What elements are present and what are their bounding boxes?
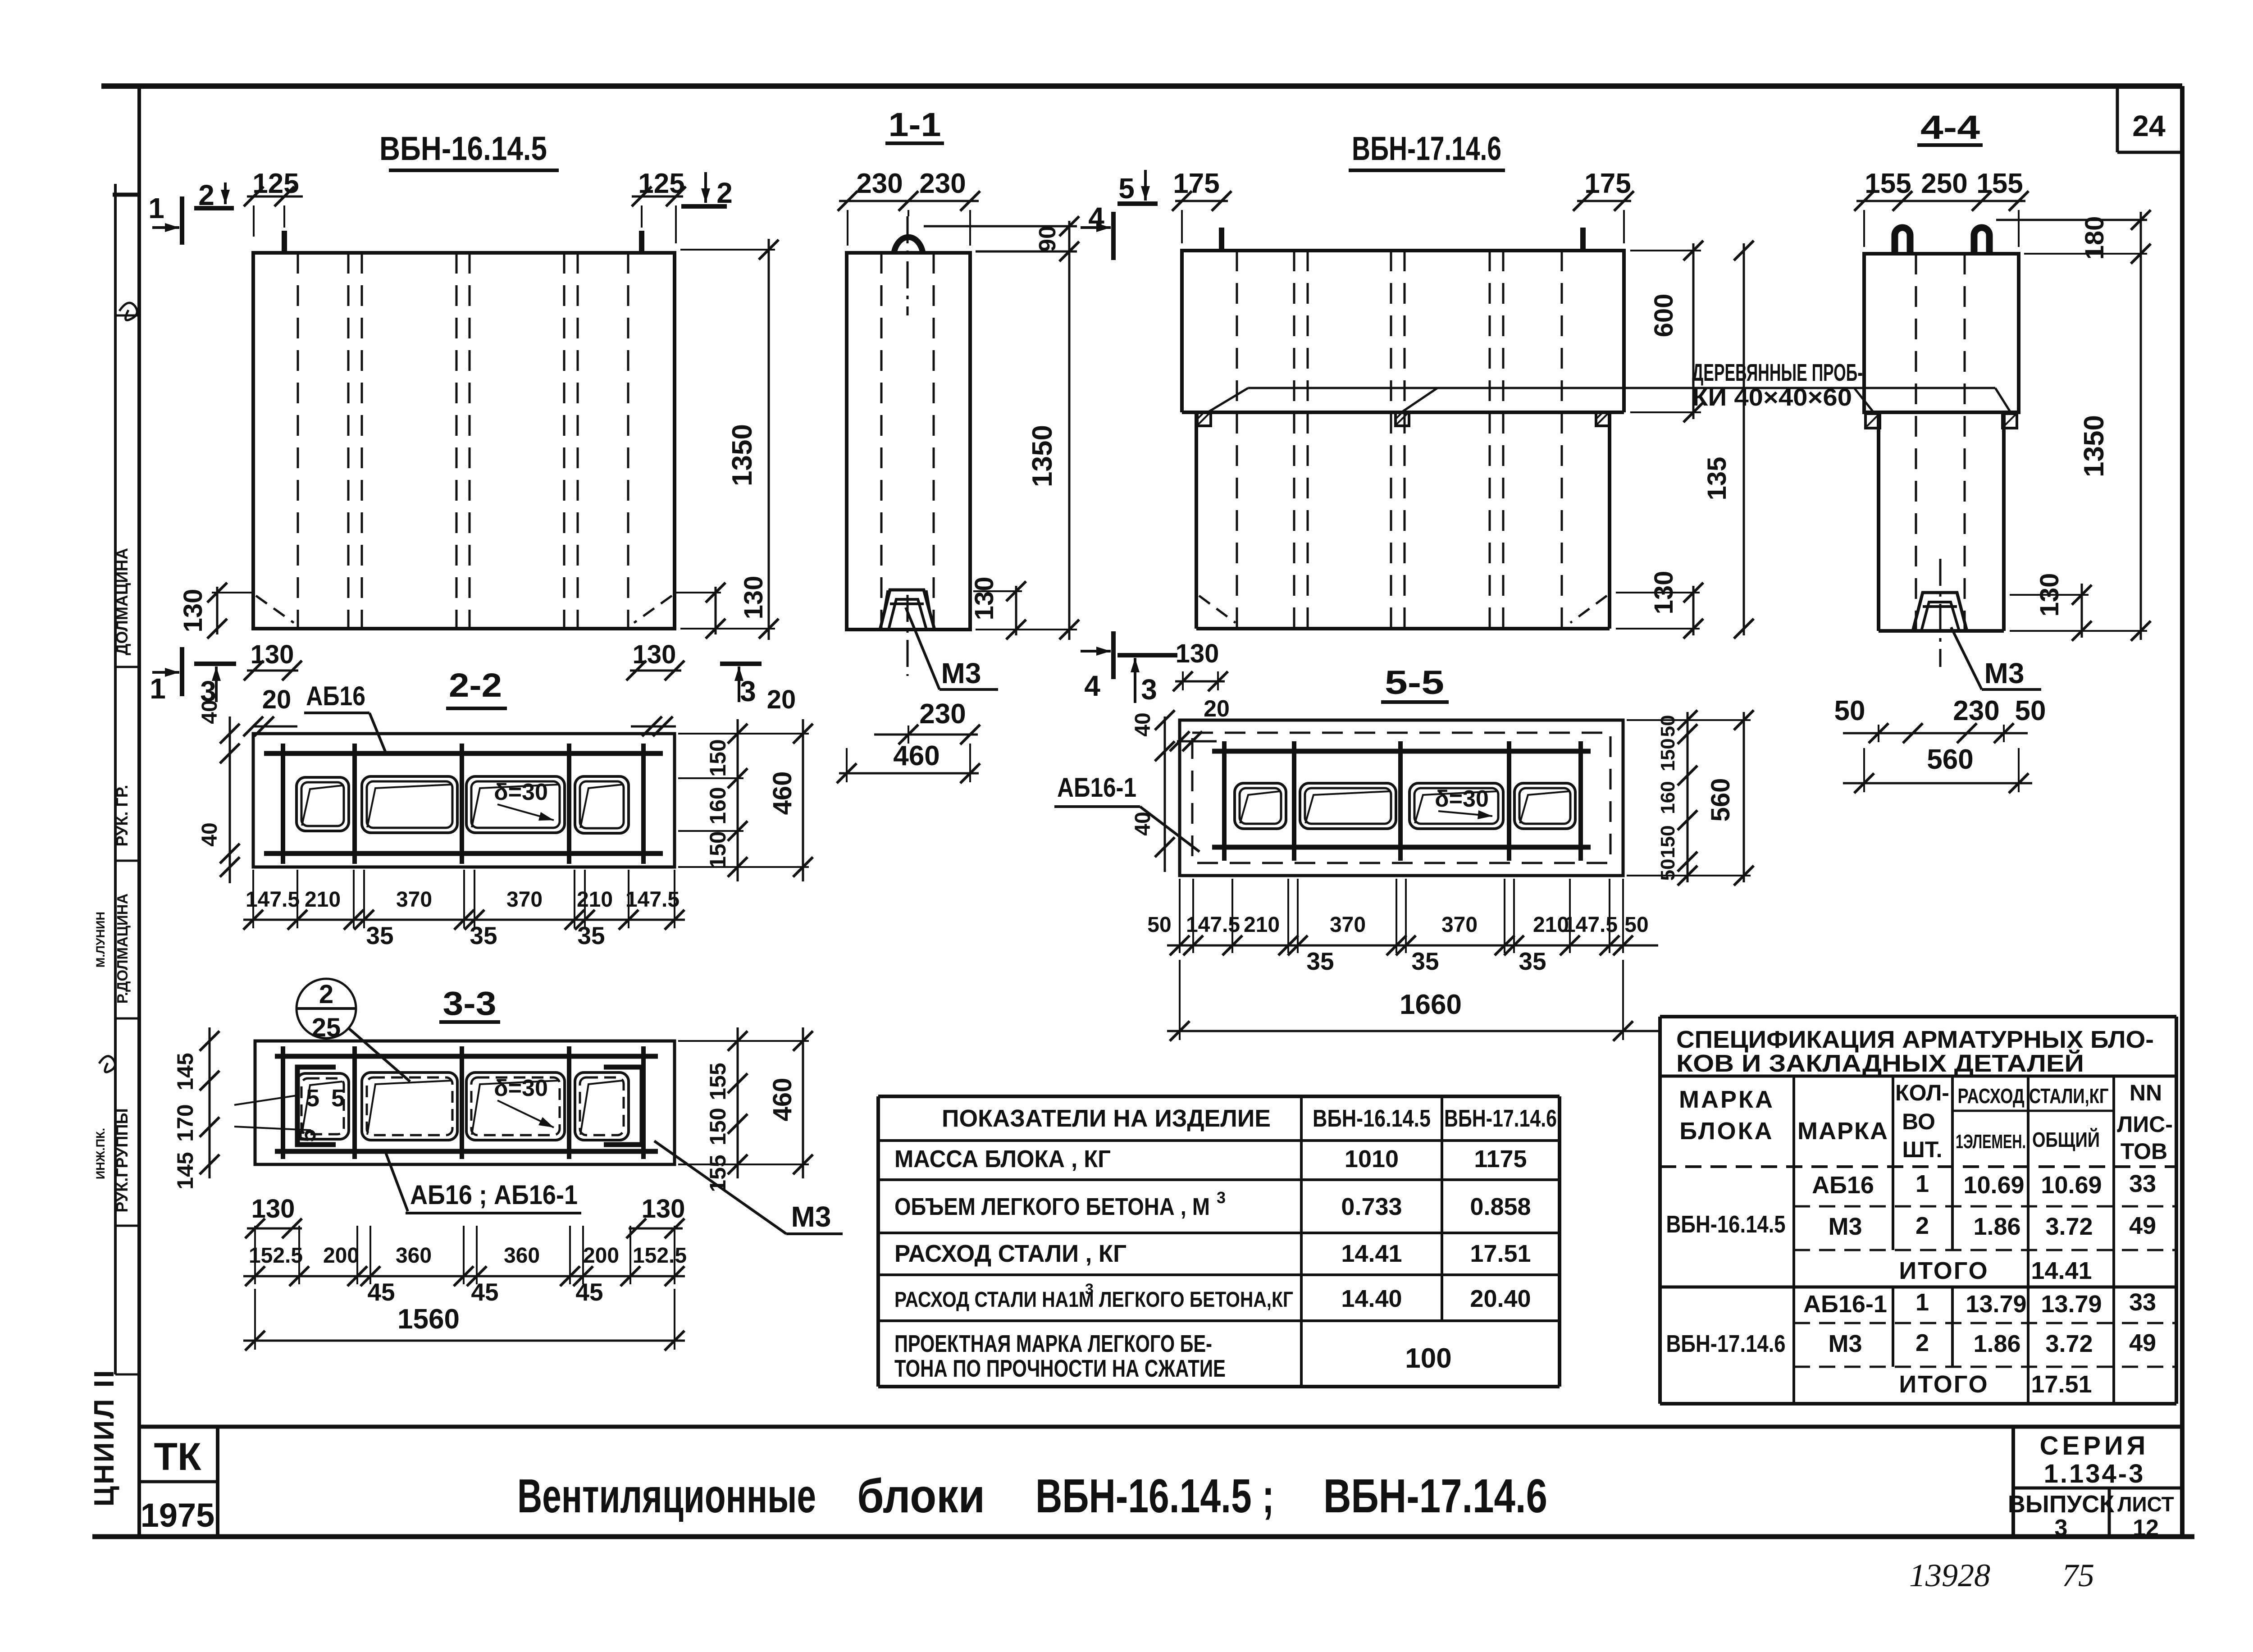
svg-text:1: 1 xyxy=(1916,1289,1929,1316)
svg-text:ЦНИИЛ II: ЦНИИЛ II xyxy=(89,1369,120,1506)
svg-text:СЕРИЯ: СЕРИЯ xyxy=(2040,1431,2149,1460)
svg-text:РАСХОД СТАЛИ НА1М ЛЕГКОГО БЕТО: РАСХОД СТАЛИ НА1М ЛЕГКОГО БЕТОНА,КГ xyxy=(894,1288,1293,1312)
svg-text:3: 3 xyxy=(2055,1515,2068,1541)
svg-text:50: 50 xyxy=(1147,913,1171,937)
svg-text:230: 230 xyxy=(919,168,966,199)
svg-text:ВЫПУСК: ВЫПУСК xyxy=(2008,1491,2115,1518)
svg-text:25: 25 xyxy=(312,1013,341,1042)
svg-text:1175: 1175 xyxy=(1474,1145,1527,1173)
svg-text:М3: М3 xyxy=(791,1200,831,1233)
svg-text:БЛОКА: БЛОКА xyxy=(1679,1118,1774,1145)
svg-text:блоки: блоки xyxy=(857,1469,985,1523)
svg-text:0.858: 0.858 xyxy=(1470,1193,1531,1220)
svg-text:1350: 1350 xyxy=(1027,425,1058,487)
svg-text:49: 49 xyxy=(2129,1212,2156,1239)
svg-text:155: 155 xyxy=(705,1155,730,1192)
svg-text:5-5: 5-5 xyxy=(1385,664,1444,701)
svg-text:40: 40 xyxy=(198,700,222,724)
svg-text:13928: 13928 xyxy=(1909,1557,1990,1593)
svg-text:ВБН-16.14.5: ВБН-16.14.5 xyxy=(379,130,547,167)
svg-text:152.5: 152.5 xyxy=(633,1244,687,1268)
svg-text:130: 130 xyxy=(970,577,999,621)
svg-text:ТОНА ПО ПРОЧНОСТИ НА СЖАТИЕ: ТОНА ПО ПРОЧНОСТИ НА СЖАТИЕ xyxy=(894,1355,1226,1382)
svg-text:125: 125 xyxy=(638,168,684,199)
svg-text:130: 130 xyxy=(178,589,208,633)
svg-text:ИТОГО: ИТОГО xyxy=(1899,1371,1988,1398)
svg-text:δ=30: δ=30 xyxy=(494,1075,548,1101)
svg-text:ДОЛМАЦИНА: ДОЛМАЦИНА xyxy=(113,548,131,655)
svg-text:1: 1 xyxy=(148,192,164,224)
svg-text:50: 50 xyxy=(1834,695,1865,726)
svg-text:35: 35 xyxy=(1519,947,1546,975)
svg-text:130: 130 xyxy=(251,640,294,669)
svg-text:130: 130 xyxy=(251,1194,295,1223)
svg-text:200: 200 xyxy=(323,1244,359,1268)
svg-text:ДЕРЕВЯННЫЕ ПРОБ-: ДЕРЕВЯННЫЕ ПРОБ- xyxy=(1692,359,1863,386)
svg-text:ТОВ: ТОВ xyxy=(2121,1139,2167,1164)
svg-text:230: 230 xyxy=(1953,695,1999,726)
svg-text:40: 40 xyxy=(1131,812,1155,835)
svg-text:ВБН-16.14.5 ;: ВБН-16.14.5 ; xyxy=(1035,1469,1274,1523)
svg-text:14.41: 14.41 xyxy=(1341,1240,1402,1267)
svg-text:1.134-3: 1.134-3 xyxy=(2044,1459,2145,1488)
svg-text:РАСХОД СТАЛИ,КГ: РАСХОД СТАЛИ,КГ xyxy=(1958,1084,2109,1108)
svg-text:М3: М3 xyxy=(941,657,981,689)
svg-text:1560: 1560 xyxy=(397,1304,460,1335)
svg-text:20: 20 xyxy=(262,685,292,714)
svg-text:230: 230 xyxy=(919,698,966,730)
svg-text:3: 3 xyxy=(1217,1188,1226,1207)
svg-text:130: 130 xyxy=(633,640,676,669)
svg-text:ОБЪЕМ ЛЕГКОГО БЕТОНА , М: ОБЪЕМ ЛЕГКОГО БЕТОНА , М xyxy=(894,1193,1210,1220)
svg-text:МАРКА: МАРКА xyxy=(1797,1118,1888,1145)
svg-text:13.79: 13.79 xyxy=(1966,1291,2026,1318)
svg-text:3.72: 3.72 xyxy=(2045,1330,2093,1357)
svg-text:50: 50 xyxy=(1624,913,1648,937)
svg-text:20.40: 20.40 xyxy=(1470,1285,1531,1312)
svg-text:13.79: 13.79 xyxy=(2041,1291,2102,1318)
svg-text:ВБН-16.14.5: ВБН-16.14.5 xyxy=(1666,1211,1786,1238)
svg-text:230: 230 xyxy=(856,168,903,199)
svg-text:2: 2 xyxy=(319,980,333,1009)
svg-text:360: 360 xyxy=(396,1244,432,1268)
svg-text:3.72: 3.72 xyxy=(2045,1213,2093,1240)
svg-text:33: 33 xyxy=(2129,1170,2156,1197)
svg-text:460: 460 xyxy=(893,740,940,771)
svg-text:150: 150 xyxy=(705,739,730,776)
svg-text:1.86: 1.86 xyxy=(1973,1330,2020,1357)
svg-text:160: 160 xyxy=(705,787,730,824)
svg-text:ЛИС-: ЛИС- xyxy=(2117,1112,2173,1137)
svg-text:1ЭЛЕМЕН.: 1ЭЛЕМЕН. xyxy=(1956,1131,2026,1153)
svg-text:33: 33 xyxy=(2129,1289,2156,1316)
svg-text:4: 4 xyxy=(1084,670,1100,702)
svg-text:ПРОЕКТНАЯ МАРКА ЛЕГКОГО БЕ-: ПРОЕКТНАЯ МАРКА ЛЕГКОГО БЕ- xyxy=(894,1330,1212,1357)
svg-text:АБ16-1: АБ16-1 xyxy=(1057,772,1136,803)
svg-text:М3: М3 xyxy=(1828,1213,1862,1240)
svg-text:ПОКАЗАТЕЛИ НА ИЗДЕЛИЕ: ПОКАЗАТЕЛИ НА ИЗДЕЛИЕ xyxy=(942,1105,1271,1132)
svg-text:МАРКА: МАРКА xyxy=(1679,1086,1774,1113)
svg-text:1.86: 1.86 xyxy=(1973,1213,2020,1240)
svg-text:АБ16: АБ16 xyxy=(1812,1172,1874,1199)
svg-text:45: 45 xyxy=(367,1278,395,1306)
svg-text:250: 250 xyxy=(1921,168,1967,199)
svg-text:17.51: 17.51 xyxy=(1470,1240,1531,1267)
svg-text:155: 155 xyxy=(705,1063,730,1100)
svg-text:ИНЖ.ПК.: ИНЖ.ПК. xyxy=(94,1128,107,1179)
svg-text:175: 175 xyxy=(1584,168,1631,199)
svg-text:ВБН-16.14.5: ВБН-16.14.5 xyxy=(1313,1105,1431,1132)
svg-text:600: 600 xyxy=(1649,294,1678,338)
svg-text:50: 50 xyxy=(2015,695,2046,726)
svg-text:ОБЩИЙ: ОБЩИЙ xyxy=(2032,1128,2100,1151)
svg-text:20: 20 xyxy=(1204,696,1230,722)
svg-text:560: 560 xyxy=(1706,778,1735,822)
svg-text:2: 2 xyxy=(1916,1212,1929,1239)
svg-text:1350: 1350 xyxy=(2079,415,2110,477)
svg-text:152.5: 152.5 xyxy=(249,1244,303,1268)
svg-text:20: 20 xyxy=(767,685,796,714)
svg-text:90: 90 xyxy=(1035,226,1061,252)
svg-text:5: 5 xyxy=(1118,172,1135,205)
svg-text:δ=30: δ=30 xyxy=(1435,786,1489,812)
svg-text:150: 150 xyxy=(705,1108,730,1145)
svg-text:460: 460 xyxy=(768,771,797,815)
svg-text:130: 130 xyxy=(642,1194,685,1223)
svg-text:1660: 1660 xyxy=(1400,989,1462,1020)
svg-text:ТК: ТК xyxy=(154,1435,201,1479)
svg-text:М3: М3 xyxy=(1984,657,2025,689)
svg-text:370: 370 xyxy=(1441,913,1478,937)
svg-text:14.40: 14.40 xyxy=(1341,1285,1402,1312)
svg-text:12: 12 xyxy=(2133,1515,2159,1541)
svg-text:1975: 1975 xyxy=(141,1497,215,1534)
svg-text:75: 75 xyxy=(2062,1557,2094,1593)
svg-text:150: 150 xyxy=(705,831,730,868)
svg-text:210: 210 xyxy=(577,888,613,912)
svg-text:360: 360 xyxy=(504,1244,540,1268)
svg-text:24: 24 xyxy=(2132,109,2166,142)
svg-text:3: 3 xyxy=(1085,1281,1094,1298)
svg-text:35: 35 xyxy=(1306,947,1334,975)
svg-text:4-4: 4-4 xyxy=(1920,109,1980,146)
svg-text:М3: М3 xyxy=(1828,1330,1862,1357)
svg-text:РАСХОД СТАЛИ , КГ: РАСХОД СТАЛИ , КГ xyxy=(894,1240,1126,1267)
svg-text:45: 45 xyxy=(575,1278,603,1306)
svg-text:КОЛ-: КОЛ- xyxy=(1895,1080,1949,1105)
svg-text:3-3: 3-3 xyxy=(443,985,497,1022)
svg-text:СПЕЦИФИКАЦИЯ АРМАТУРНЫХ БЛО-: СПЕЦИФИКАЦИЯ АРМАТУРНЫХ БЛО- xyxy=(1676,1026,2154,1053)
svg-text:ВО: ВО xyxy=(1902,1109,1935,1134)
svg-text:М.ЛУНИН: М.ЛУНИН xyxy=(94,912,107,967)
svg-text:460: 460 xyxy=(768,1078,797,1122)
svg-text:40: 40 xyxy=(198,822,222,846)
svg-text:МАССА БЛОКА , КГ: МАССА БЛОКА , КГ xyxy=(894,1145,1111,1173)
svg-text:5: 5 xyxy=(306,1085,319,1112)
svg-text:ШТ.: ШТ. xyxy=(1902,1137,1942,1162)
svg-text:560: 560 xyxy=(1927,744,1973,775)
svg-text:Вентиляционные: Вентиляционные xyxy=(517,1469,816,1523)
svg-text:АБ16 ; АБ16-1: АБ16 ; АБ16-1 xyxy=(410,1180,578,1210)
svg-text:150: 150 xyxy=(1657,738,1679,771)
svg-text:1: 1 xyxy=(1916,1170,1929,1197)
svg-text:100: 100 xyxy=(1405,1343,1451,1374)
svg-text:210: 210 xyxy=(305,888,341,912)
svg-text:170: 170 xyxy=(173,1104,198,1141)
svg-text:35: 35 xyxy=(577,922,605,949)
svg-text:ВБН-17.14.6: ВБН-17.14.6 xyxy=(1444,1105,1557,1132)
svg-text:370: 370 xyxy=(1330,913,1366,937)
svg-text:АБ16: АБ16 xyxy=(306,681,365,711)
svg-text:1-1: 1-1 xyxy=(889,106,941,143)
svg-text:200: 200 xyxy=(583,1244,619,1268)
svg-text:10.69: 10.69 xyxy=(2041,1172,2102,1199)
svg-text:17.51: 17.51 xyxy=(2031,1371,2092,1398)
svg-text:160: 160 xyxy=(1657,781,1679,814)
svg-text:1350: 1350 xyxy=(727,424,758,486)
svg-text:10.69: 10.69 xyxy=(1963,1172,2024,1199)
svg-text:155: 155 xyxy=(1865,168,1911,199)
svg-text:NN: NN xyxy=(2130,1080,2162,1105)
svg-text:АБ16-1: АБ16-1 xyxy=(1803,1291,1887,1318)
svg-text:130: 130 xyxy=(739,576,768,620)
svg-text:КИ 40×40×60: КИ 40×40×60 xyxy=(1692,384,1852,411)
svg-text:155: 155 xyxy=(1976,168,2023,199)
svg-text:РУК. ГР.: РУК. ГР. xyxy=(113,785,131,847)
svg-text:1: 1 xyxy=(150,672,166,705)
svg-text:130: 130 xyxy=(1176,639,1219,668)
svg-text:1010: 1010 xyxy=(1345,1145,1399,1173)
svg-text:ИТОГО: ИТОГО xyxy=(1899,1257,1988,1284)
svg-text:147.5: 147.5 xyxy=(625,888,680,912)
svg-text:50: 50 xyxy=(1657,859,1679,881)
svg-text:ВБН-17.14.6: ВБН-17.14.6 xyxy=(1323,1469,1547,1523)
svg-text:210: 210 xyxy=(1244,913,1280,937)
svg-text:5: 5 xyxy=(331,1085,345,1112)
svg-text:ВБН-17.14.6: ВБН-17.14.6 xyxy=(1352,130,1501,167)
svg-text:0.733: 0.733 xyxy=(1341,1193,1402,1220)
svg-text:14.41: 14.41 xyxy=(2031,1257,2092,1284)
svg-text:Р.ДОЛМАЦИНА: Р.ДОЛМАЦИНА xyxy=(114,894,131,1004)
svg-text:δ=30: δ=30 xyxy=(494,779,548,805)
svg-text:150: 150 xyxy=(1657,825,1679,858)
svg-text:5: 5 xyxy=(295,1129,321,1142)
svg-text:50: 50 xyxy=(1657,715,1679,737)
svg-text:175: 175 xyxy=(1173,168,1219,199)
svg-text:КОВ И ЗАКЛАДНЫХ ДЕТАЛЕЙ: КОВ И ЗАКЛАДНЫХ ДЕТАЛЕЙ xyxy=(1676,1050,2084,1077)
svg-text:2: 2 xyxy=(1916,1329,1929,1356)
svg-text:ЛИСТ: ЛИСТ xyxy=(2117,1492,2174,1516)
svg-text:2-2: 2-2 xyxy=(449,666,502,704)
svg-text:145: 145 xyxy=(173,1152,198,1189)
svg-text:135: 135 xyxy=(1702,457,1732,501)
svg-text:3: 3 xyxy=(1141,673,1157,706)
svg-text:40: 40 xyxy=(1131,712,1155,736)
svg-text:РУК.ГРУППЫ: РУК.ГРУППЫ xyxy=(113,1108,131,1212)
svg-text:ВБН-17.14.6: ВБН-17.14.6 xyxy=(1666,1330,1786,1357)
svg-text:35: 35 xyxy=(366,922,393,949)
svg-text:370: 370 xyxy=(396,888,432,912)
svg-text:49: 49 xyxy=(2129,1329,2156,1356)
svg-text:125: 125 xyxy=(252,168,299,199)
svg-text:45: 45 xyxy=(471,1278,498,1306)
svg-text:370: 370 xyxy=(506,888,543,912)
svg-text:35: 35 xyxy=(1411,947,1439,975)
svg-text:145: 145 xyxy=(173,1053,198,1090)
